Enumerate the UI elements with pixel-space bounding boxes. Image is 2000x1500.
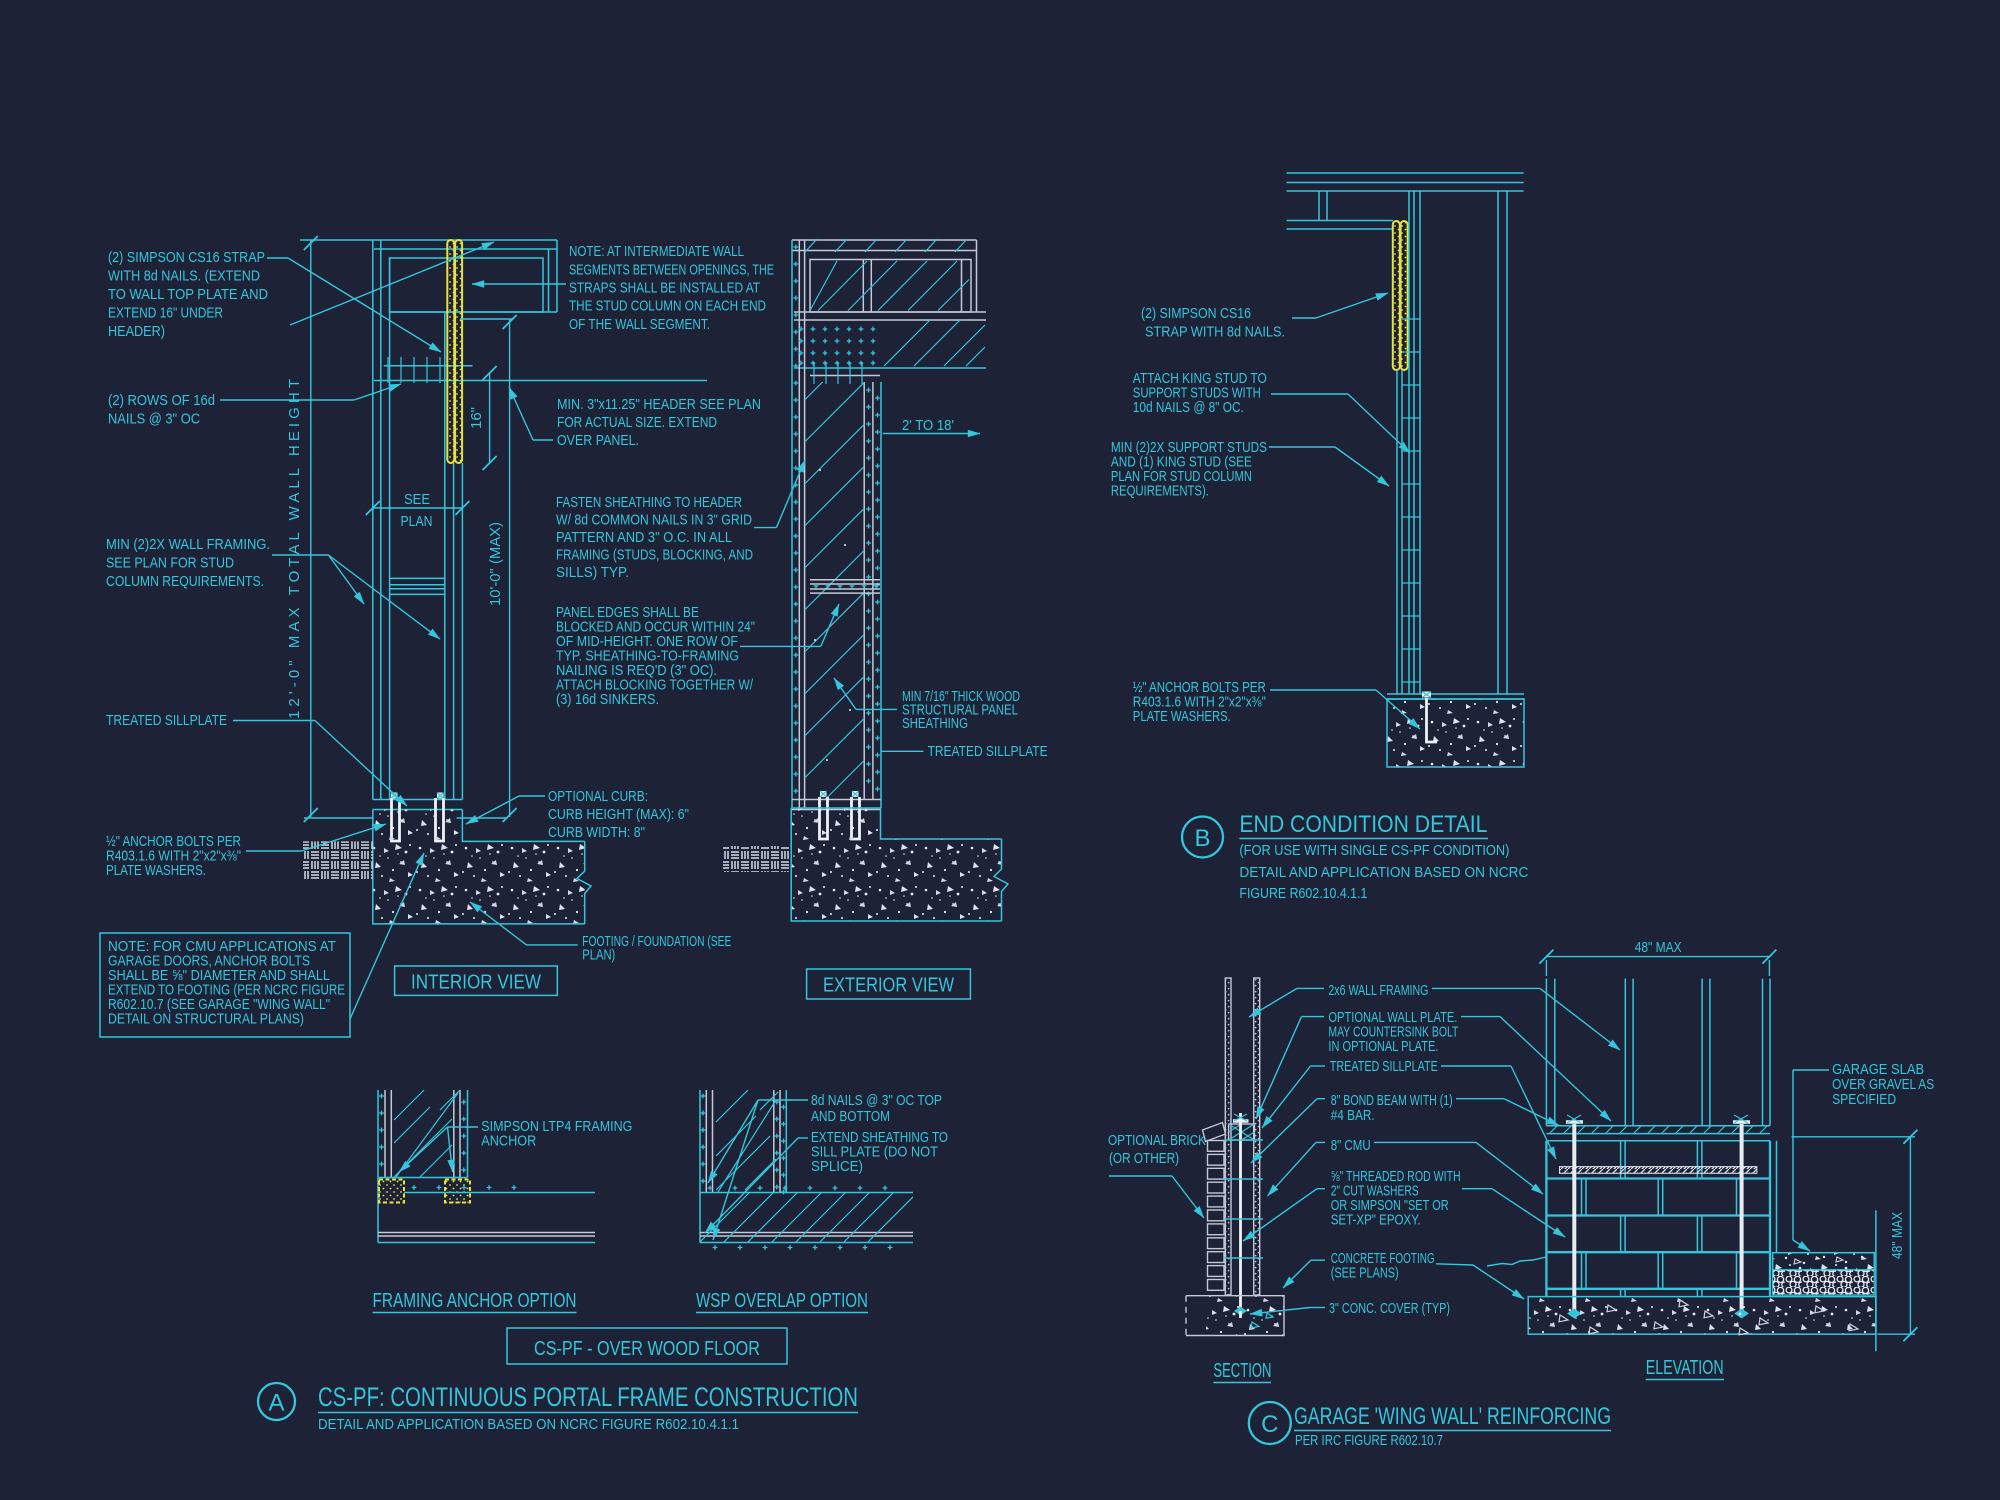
svg-text:DETAIL AND APPLICATION BASED O: DETAIL AND APPLICATION BASED ON NCRC: [1239, 864, 1528, 881]
svg-text:SEE PLAN FOR STUD: SEE PLAN FOR STUD: [106, 555, 234, 572]
svg-text:CURB HEIGHT (MAX): 6": CURB HEIGHT (MAX): 6": [548, 806, 689, 823]
svg-text:(SEE PLANS): (SEE PLANS): [1331, 1265, 1399, 1282]
svg-text:(FOR USE WITH SINGLE CS-PF CON: (FOR USE WITH SINGLE CS-PF CONDITION): [1239, 842, 1509, 859]
svg-text:WITH 8d NAILS. (EXTEND: WITH 8d NAILS. (EXTEND: [108, 268, 260, 285]
svg-text:STRAP WITH 8d NAILS.: STRAP WITH 8d NAILS.: [1145, 324, 1285, 341]
svg-text:10d NAILS @ 8" OC.: 10d NAILS @ 8" OC.: [1133, 399, 1244, 416]
svg-text:NOTE: AT INTERMEDIATE WALL: NOTE: AT INTERMEDIATE WALL: [569, 243, 744, 260]
svg-text:SPECIFIED: SPECIFIED: [1832, 1091, 1896, 1108]
svg-text:PLAN): PLAN): [582, 947, 615, 964]
svg-text:B: B: [1194, 825, 1210, 852]
svg-text:REQUIREMENTS).: REQUIREMENTS).: [1111, 483, 1209, 500]
svg-text:FRAMING (STUDS, BLOCKING, AND: FRAMING (STUDS, BLOCKING, AND: [556, 547, 753, 564]
svg-text:48" MAX: 48" MAX: [1889, 1212, 1906, 1259]
svg-text:PLATE WASHERS.: PLATE WASHERS.: [1133, 708, 1231, 725]
svg-text:MIN (2)2X WALL FRAMING.: MIN (2)2X WALL FRAMING.: [106, 536, 270, 553]
svg-text:SEE: SEE: [404, 491, 430, 508]
svg-text:CURB WIDTH: 8": CURB WIDTH: 8": [548, 824, 645, 841]
svg-text:DETAIL ON STRUCTURAL PLANS): DETAIL ON STRUCTURAL PLANS): [108, 1011, 304, 1028]
svg-text:OPTIONAL CURB:: OPTIONAL CURB:: [548, 788, 648, 805]
svg-text:(2) SIMPSON CS16: (2) SIMPSON CS16: [1141, 305, 1251, 322]
svg-text:(OR OTHER): (OR OTHER): [1109, 1150, 1179, 1167]
svg-text:EXTEND 16" UNDER: EXTEND 16" UNDER: [108, 305, 223, 322]
svg-text:SPLICE): SPLICE): [811, 1158, 863, 1175]
svg-text:SHEATHING: SHEATHING: [902, 715, 968, 732]
svg-text:GARAGE 'WING WALL' REINFORCING: GARAGE 'WING WALL' REINFORCING: [1294, 1403, 1611, 1430]
svg-text:EXTERIOR VIEW: EXTERIOR VIEW: [823, 975, 954, 997]
svg-text:FOR ACTUAL SIZE. EXTEND: FOR ACTUAL SIZE. EXTEND: [557, 414, 717, 431]
svg-text:AND BOTTOM: AND BOTTOM: [811, 1108, 890, 1125]
svg-text:TREATED SILLPLATE: TREATED SILLPLATE: [106, 712, 227, 729]
svg-text:NAILS @ 3" OC: NAILS @ 3" OC: [108, 411, 200, 428]
svg-text:CS-PF: CONTINUOUS PORTAL FRAME: CS-PF: CONTINUOUS PORTAL FRAME CONSTRUCT…: [318, 1382, 858, 1412]
svg-text:PLAN: PLAN: [401, 513, 433, 530]
svg-text:COLUMN REQUIREMENTS.: COLUMN REQUIREMENTS.: [106, 573, 264, 590]
svg-text:SECTION: SECTION: [1213, 1360, 1271, 1382]
svg-text:SET-XP" EPOXY.: SET-XP" EPOXY.: [1331, 1212, 1421, 1229]
svg-text:2' TO 18': 2' TO 18': [902, 417, 954, 434]
svg-text:TREATED SILLPLATE: TREATED SILLPLATE: [928, 743, 1048, 760]
svg-text:2x6 WALL FRAMING: 2x6 WALL FRAMING: [1328, 982, 1428, 999]
svg-text:PER IRC FIGURE R602.10.7: PER IRC FIGURE R602.10.7: [1295, 1432, 1443, 1449]
svg-text:SILLS) TYP.: SILLS) TYP.: [556, 564, 629, 581]
svg-text:OPTIONAL BRICK: OPTIONAL BRICK: [1108, 1132, 1206, 1149]
svg-text:DETAIL AND APPLICATION BASED O: DETAIL AND APPLICATION BASED ON NCRC FIG…: [318, 1416, 739, 1433]
svg-text:HEADER): HEADER): [108, 323, 165, 340]
svg-text:ELEVATION: ELEVATION: [1646, 1357, 1724, 1379]
svg-text:MIN. 3"x11.25" HEADER SEE PLAN: MIN. 3"x11.25" HEADER SEE PLAN: [557, 396, 761, 413]
svg-text:#4 BAR.: #4 BAR.: [1331, 1107, 1375, 1124]
svg-text:TO WALL TOP PLATE AND: TO WALL TOP PLATE AND: [108, 286, 268, 303]
svg-text:IN OPTIONAL PLATE.: IN OPTIONAL PLATE.: [1328, 1038, 1438, 1055]
svg-text:(2) SIMPSON CS16 STRAP: (2) SIMPSON CS16 STRAP: [108, 249, 265, 266]
svg-text:8d NAILS @ 3" OC TOP: 8d NAILS @ 3" OC TOP: [811, 1092, 942, 1109]
svg-text:WSP OVERLAP OPTION: WSP OVERLAP OPTION: [696, 1290, 868, 1312]
svg-text:FIGURE R602.10.4.1.1: FIGURE R602.10.4.1.1: [1239, 885, 1367, 902]
svg-text:(2) ROWS OF 16d: (2) ROWS OF 16d: [108, 392, 215, 409]
svg-text:8" CMU: 8" CMU: [1331, 1137, 1371, 1154]
svg-text:THE STUD COLUMN ON EACH END: THE STUD COLUMN ON EACH END: [569, 298, 766, 315]
svg-text:W/ 8d COMMON NAILS IN 3" GRID: W/ 8d COMMON NAILS IN 3" GRID: [556, 512, 752, 529]
svg-text:STRAPS SHALL BE INSTALLED AT: STRAPS SHALL BE INSTALLED AT: [569, 280, 760, 297]
svg-text:A: A: [268, 1390, 284, 1417]
svg-text:16": 16": [468, 407, 485, 429]
svg-text:FASTEN SHEATHING TO HEADER: FASTEN SHEATHING TO HEADER: [556, 494, 742, 511]
svg-text:3" CONC. COVER (TYP): 3" CONC. COVER (TYP): [1329, 1300, 1450, 1317]
svg-text:PLATE WASHERS.: PLATE WASHERS.: [106, 862, 206, 879]
svg-text:OVER PANEL.: OVER PANEL.: [557, 432, 639, 449]
svg-text:SEGMENTS BETWEEN OPENINGS, THE: SEGMENTS BETWEEN OPENINGS, THE: [569, 262, 774, 279]
svg-text:TREATED SILLPLATE: TREATED SILLPLATE: [1330, 1058, 1438, 1075]
svg-text:END CONDITION DETAIL: END CONDITION DETAIL: [1239, 811, 1487, 838]
svg-text:PATTERN AND 3" O.C. IN ALL: PATTERN AND 3" O.C. IN ALL: [556, 529, 732, 546]
svg-text:INTERIOR VIEW: INTERIOR VIEW: [411, 972, 541, 994]
svg-text:C: C: [1261, 1411, 1278, 1438]
svg-text:10'-0" (MAX): 10'-0" (MAX): [487, 522, 504, 606]
svg-text:FRAMING ANCHOR OPTION: FRAMING ANCHOR OPTION: [373, 1290, 577, 1312]
svg-text:CS-PF - OVER WOOD FLOOR: CS-PF - OVER WOOD FLOOR: [534, 1338, 760, 1360]
svg-text:(3) 16d SINKERS.: (3) 16d SINKERS.: [556, 691, 659, 708]
svg-text:OF THE WALL SEGMENT.: OF THE WALL SEGMENT.: [569, 316, 710, 333]
svg-text:48" MAX: 48" MAX: [1635, 939, 1682, 956]
svg-text:ANCHOR: ANCHOR: [481, 1133, 536, 1150]
